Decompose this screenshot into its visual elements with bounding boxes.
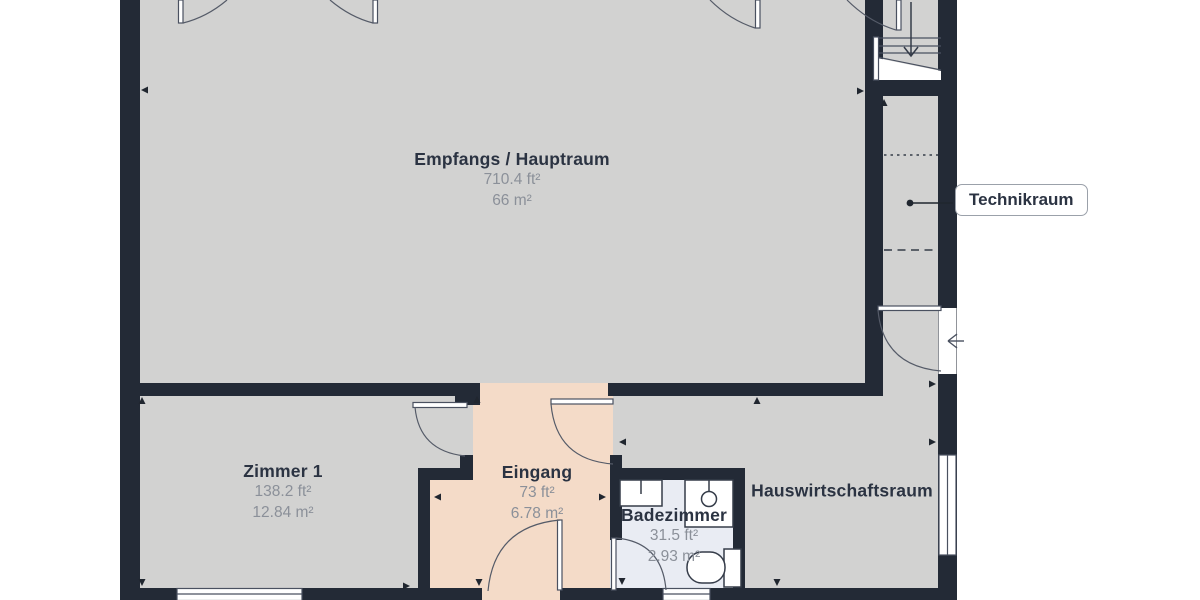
label-hauswirtschaftsraum: Hauswirtschaftsraum (751, 481, 933, 502)
room-name: Hauswirtschaftsraum (751, 481, 933, 502)
room-area-metric: 6.78 m² (502, 504, 572, 525)
door-leaf-badezimmer (612, 538, 617, 590)
door-leaf-eingang-bottom (558, 520, 563, 590)
door-leaf-entry (878, 306, 941, 311)
room-area-metric: 2.93 m² (621, 547, 727, 568)
door-leaf-zimmer1 (413, 403, 467, 408)
room-area-imperial: 710.4 ft² (414, 170, 610, 191)
room-name: Badezimmer (621, 505, 727, 526)
door-arc-zimmer1 (415, 407, 465, 456)
window-bottom-zimmer1 (177, 589, 302, 600)
label-zimmer1: Zimmer 1 138.2 ft² 12.84 m² (243, 461, 322, 523)
door-arc-top-2 (330, 0, 373, 23)
floorplan-drawing (0, 0, 1200, 600)
stairs-direction-arrow (904, 2, 918, 56)
door-arc-top-3 (710, 0, 755, 28)
door-arc-eingang-top (551, 404, 613, 464)
door-arc-top-1 (183, 0, 227, 23)
door-arc-eingang-bottom (488, 520, 560, 591)
room-area-metric: 12.84 m² (243, 503, 322, 524)
door-arc-entry (878, 310, 941, 371)
door-leaf-stairwell (897, 0, 902, 30)
door-arc-stairwell (847, 0, 896, 30)
room-name: Eingang (502, 462, 572, 483)
room-area-metric: 66 m² (414, 191, 610, 212)
window-bottom-bad (663, 589, 710, 600)
label-eingang: Eingang 73 ft² 6.78 m² (502, 462, 572, 524)
label-hauptraum: Empfangs / Hauptraum 710.4 ft² 66 m² (414, 149, 610, 211)
window-right (939, 455, 956, 555)
door-leaf-eingang-top (551, 399, 613, 404)
label-technikraum-callout: Technikraum (955, 184, 1088, 216)
technikraum-leader-line (907, 200, 953, 207)
floorplan: Empfangs / Hauptraum 710.4 ft² 66 m² Zim… (0, 0, 1200, 600)
room-name: Zimmer 1 (243, 461, 322, 482)
stairs (874, 2, 942, 80)
room-area-imperial: 73 ft² (502, 483, 572, 504)
room-area-imperial: 138.2 ft² (243, 482, 322, 503)
door-leaf-top-2 (373, 0, 378, 23)
door-leaf-top-1 (179, 0, 184, 23)
room-area-imperial: 31.5 ft² (621, 526, 727, 547)
entrance-bottom-opening (482, 588, 560, 600)
door-leaf-top-3 (756, 0, 761, 28)
label-badezimmer: Badezimmer 31.5 ft² 2.93 m² (621, 505, 727, 567)
room-name: Technikraum (969, 190, 1074, 209)
room-name: Empfangs / Hauptraum (414, 149, 610, 170)
